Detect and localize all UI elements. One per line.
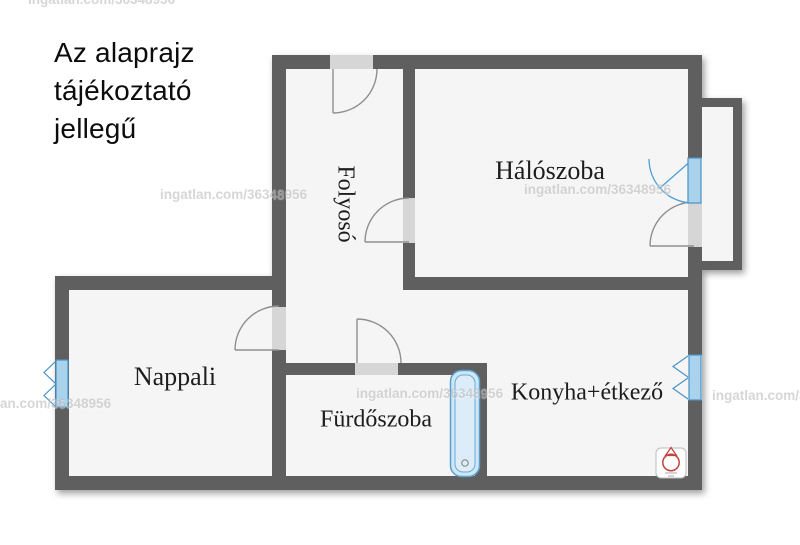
watermark: ingatlan.com/36348956 <box>712 388 800 403</box>
watermark: ingatlan.com/36348956 <box>28 0 175 7</box>
disclaimer-line-3: jellegű <box>54 110 195 148</box>
boiler-icon <box>656 448 686 479</box>
room-label-hallway: Folyosó <box>332 165 359 242</box>
livingroom-door-opening <box>272 307 286 350</box>
bedroom-door-opening <box>403 198 415 243</box>
watermark: ingatlan.com/36348956 <box>160 187 307 202</box>
disclaimer-line-1: Az alaprajz <box>54 34 195 72</box>
watermark: ingatlan.com/36348956 <box>0 396 111 411</box>
room-label-bathroom: Fürdőszoba <box>320 407 432 434</box>
entry-door-opening <box>330 55 373 69</box>
room-label-kitchen: Konyha+étkező <box>511 380 663 407</box>
floor-plan: Az alaprajz tájékoztató jellegű Folyosó … <box>0 0 800 545</box>
disclaimer-line-2: tájékoztató <box>54 72 195 110</box>
watermark: ingatlan.com/36348956 <box>524 182 671 197</box>
room-label-livingroom: Nappali <box>134 362 216 392</box>
balcony-door-opening <box>688 203 702 247</box>
watermark: ingatlan.com/36348956 <box>356 386 503 401</box>
disclaimer-text: Az alaprajz tájékoztató jellegű <box>54 34 195 148</box>
bathroom-door-opening <box>355 363 398 375</box>
